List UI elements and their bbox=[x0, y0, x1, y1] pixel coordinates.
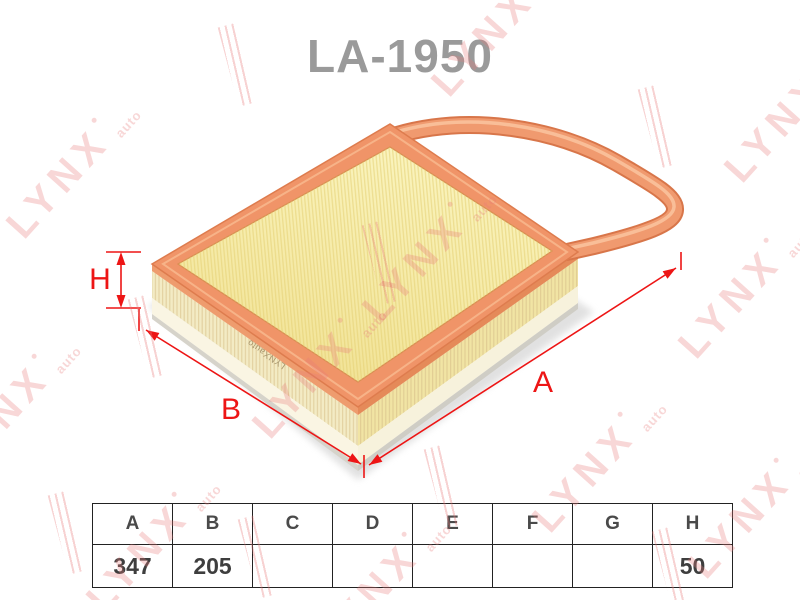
dim-col-header: A bbox=[93, 504, 173, 545]
dim-label-h: H bbox=[89, 263, 111, 296]
dim-value-cell bbox=[413, 545, 493, 588]
dim-col-header: C bbox=[253, 504, 333, 545]
dimensions-header-row: A B C D E F G H bbox=[93, 504, 733, 545]
dimensions-table: A B C D E F G H 347 205 50 bbox=[92, 503, 733, 588]
dim-col-header: B bbox=[173, 504, 253, 545]
dim-value-cell bbox=[573, 545, 653, 588]
dim-col-header: F bbox=[493, 504, 573, 545]
dim-col-header: G bbox=[573, 504, 653, 545]
dim-label-a: A bbox=[533, 366, 553, 399]
dimensions-value-row: 347 205 50 bbox=[93, 545, 733, 588]
dim-col-header: E bbox=[413, 504, 493, 545]
catalog-image: LYNXauto LYNXauto LYNXauto LYNXauto LYNX… bbox=[0, 0, 800, 600]
dim-label-b: B bbox=[221, 393, 241, 426]
dim-value-cell bbox=[253, 545, 333, 588]
dim-value-cell: 205 bbox=[173, 545, 253, 588]
dimension-h bbox=[106, 252, 141, 308]
dim-value-cell bbox=[333, 545, 413, 588]
dim-value-cell bbox=[493, 545, 573, 588]
dim-col-header: H bbox=[653, 504, 733, 545]
dim-value-cell: 347 bbox=[93, 545, 173, 588]
dim-col-header: D bbox=[333, 504, 413, 545]
dim-value-cell: 50 bbox=[653, 545, 733, 588]
